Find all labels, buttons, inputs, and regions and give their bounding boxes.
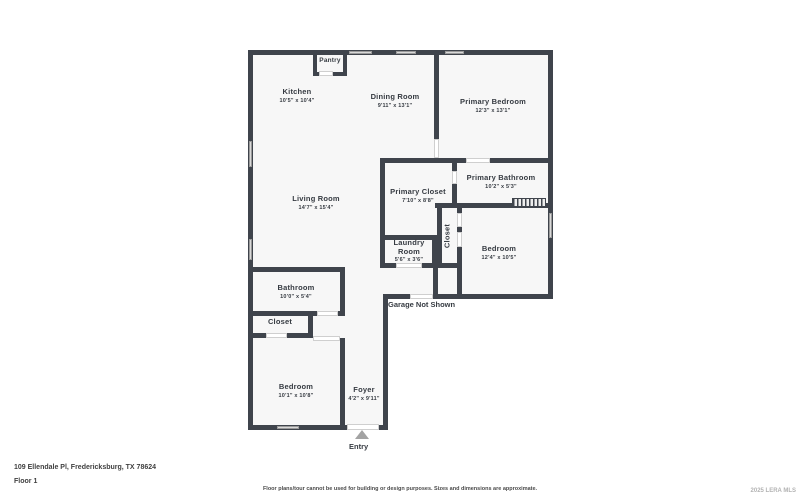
door-opening (313, 336, 340, 341)
wall (548, 50, 553, 299)
wall (437, 208, 442, 268)
wall (457, 247, 462, 299)
wall (433, 263, 438, 299)
door-opening (457, 213, 462, 227)
wall (380, 158, 385, 268)
door-opening (319, 71, 333, 76)
wall (457, 203, 462, 213)
wall (383, 297, 388, 430)
door-opening (452, 171, 457, 184)
room-label-kitchen: Kitchen 10'5" x 10'4" (280, 88, 315, 104)
door-opening (434, 139, 439, 158)
room-label-primary-closet: Primary Closet 7'10" x 8'8" (390, 188, 446, 204)
wall (340, 267, 345, 316)
wall (340, 338, 345, 430)
window-hatch (512, 198, 546, 207)
window (249, 239, 252, 260)
wall (287, 333, 313, 338)
window (549, 213, 552, 238)
wall (248, 267, 345, 272)
room-label-pantry: Pantry (319, 57, 340, 64)
room-label-primary-bedroom: Primary Bedroom 12'3" x 13'1" (460, 98, 526, 114)
door-opening (317, 311, 338, 316)
wall (338, 311, 345, 316)
room-label-living-room: Living Room 14'7" x 15'4" (292, 195, 340, 211)
room-label-bedroom-right: Bedroom 12'4" x 10'5" (482, 245, 517, 261)
garage-note: Garage Not Shown (388, 300, 455, 309)
wall (433, 294, 553, 299)
room-label-bedroom-left: Bedroom 10'1" x 10'8" (279, 383, 314, 399)
room-label-laundry-room: Laundry Room 5'6" x 3'6" (388, 239, 430, 264)
wall (490, 158, 553, 163)
wall (248, 333, 266, 338)
door-opening (466, 158, 490, 163)
wall (248, 311, 317, 316)
mls-watermark: 2025 LERA MLS (751, 488, 796, 494)
wall (333, 72, 347, 76)
door-opening (457, 232, 462, 247)
room-label-primary-bathroom: Primary Bathroom 10'2" x 5'3" (467, 174, 536, 190)
room-label-hall-closet: Closet (444, 224, 453, 248)
window (249, 141, 252, 167)
wall (383, 263, 396, 268)
window (445, 51, 464, 54)
door-opening (396, 263, 422, 268)
room-label-dining-room: Dining Room 9'11" x 13'1" (371, 93, 420, 109)
room-label-bathroom: Bathroom 10'0" x 5'4" (277, 284, 314, 300)
floor-area-left-wing (248, 50, 388, 430)
wall (434, 50, 439, 139)
disclaimer-text: Floor plans/tour cannot be used for buil… (0, 486, 800, 492)
room-label-foyer: Foyer 4'2" x 9'11" (348, 386, 379, 402)
wall (452, 163, 457, 171)
entry-arrow-icon (355, 430, 369, 439)
floor-number: Floor 1 (14, 478, 37, 485)
door-opening (410, 294, 433, 299)
window (396, 51, 416, 54)
wall (422, 263, 462, 268)
window (277, 426, 299, 429)
window (349, 51, 372, 54)
room-label-closet-left: Closet (268, 318, 292, 327)
property-address: 109 Ellendale Pl, Fredericksburg, TX 786… (14, 464, 156, 471)
door-opening (266, 333, 287, 338)
entry-label: Entry (349, 442, 368, 451)
